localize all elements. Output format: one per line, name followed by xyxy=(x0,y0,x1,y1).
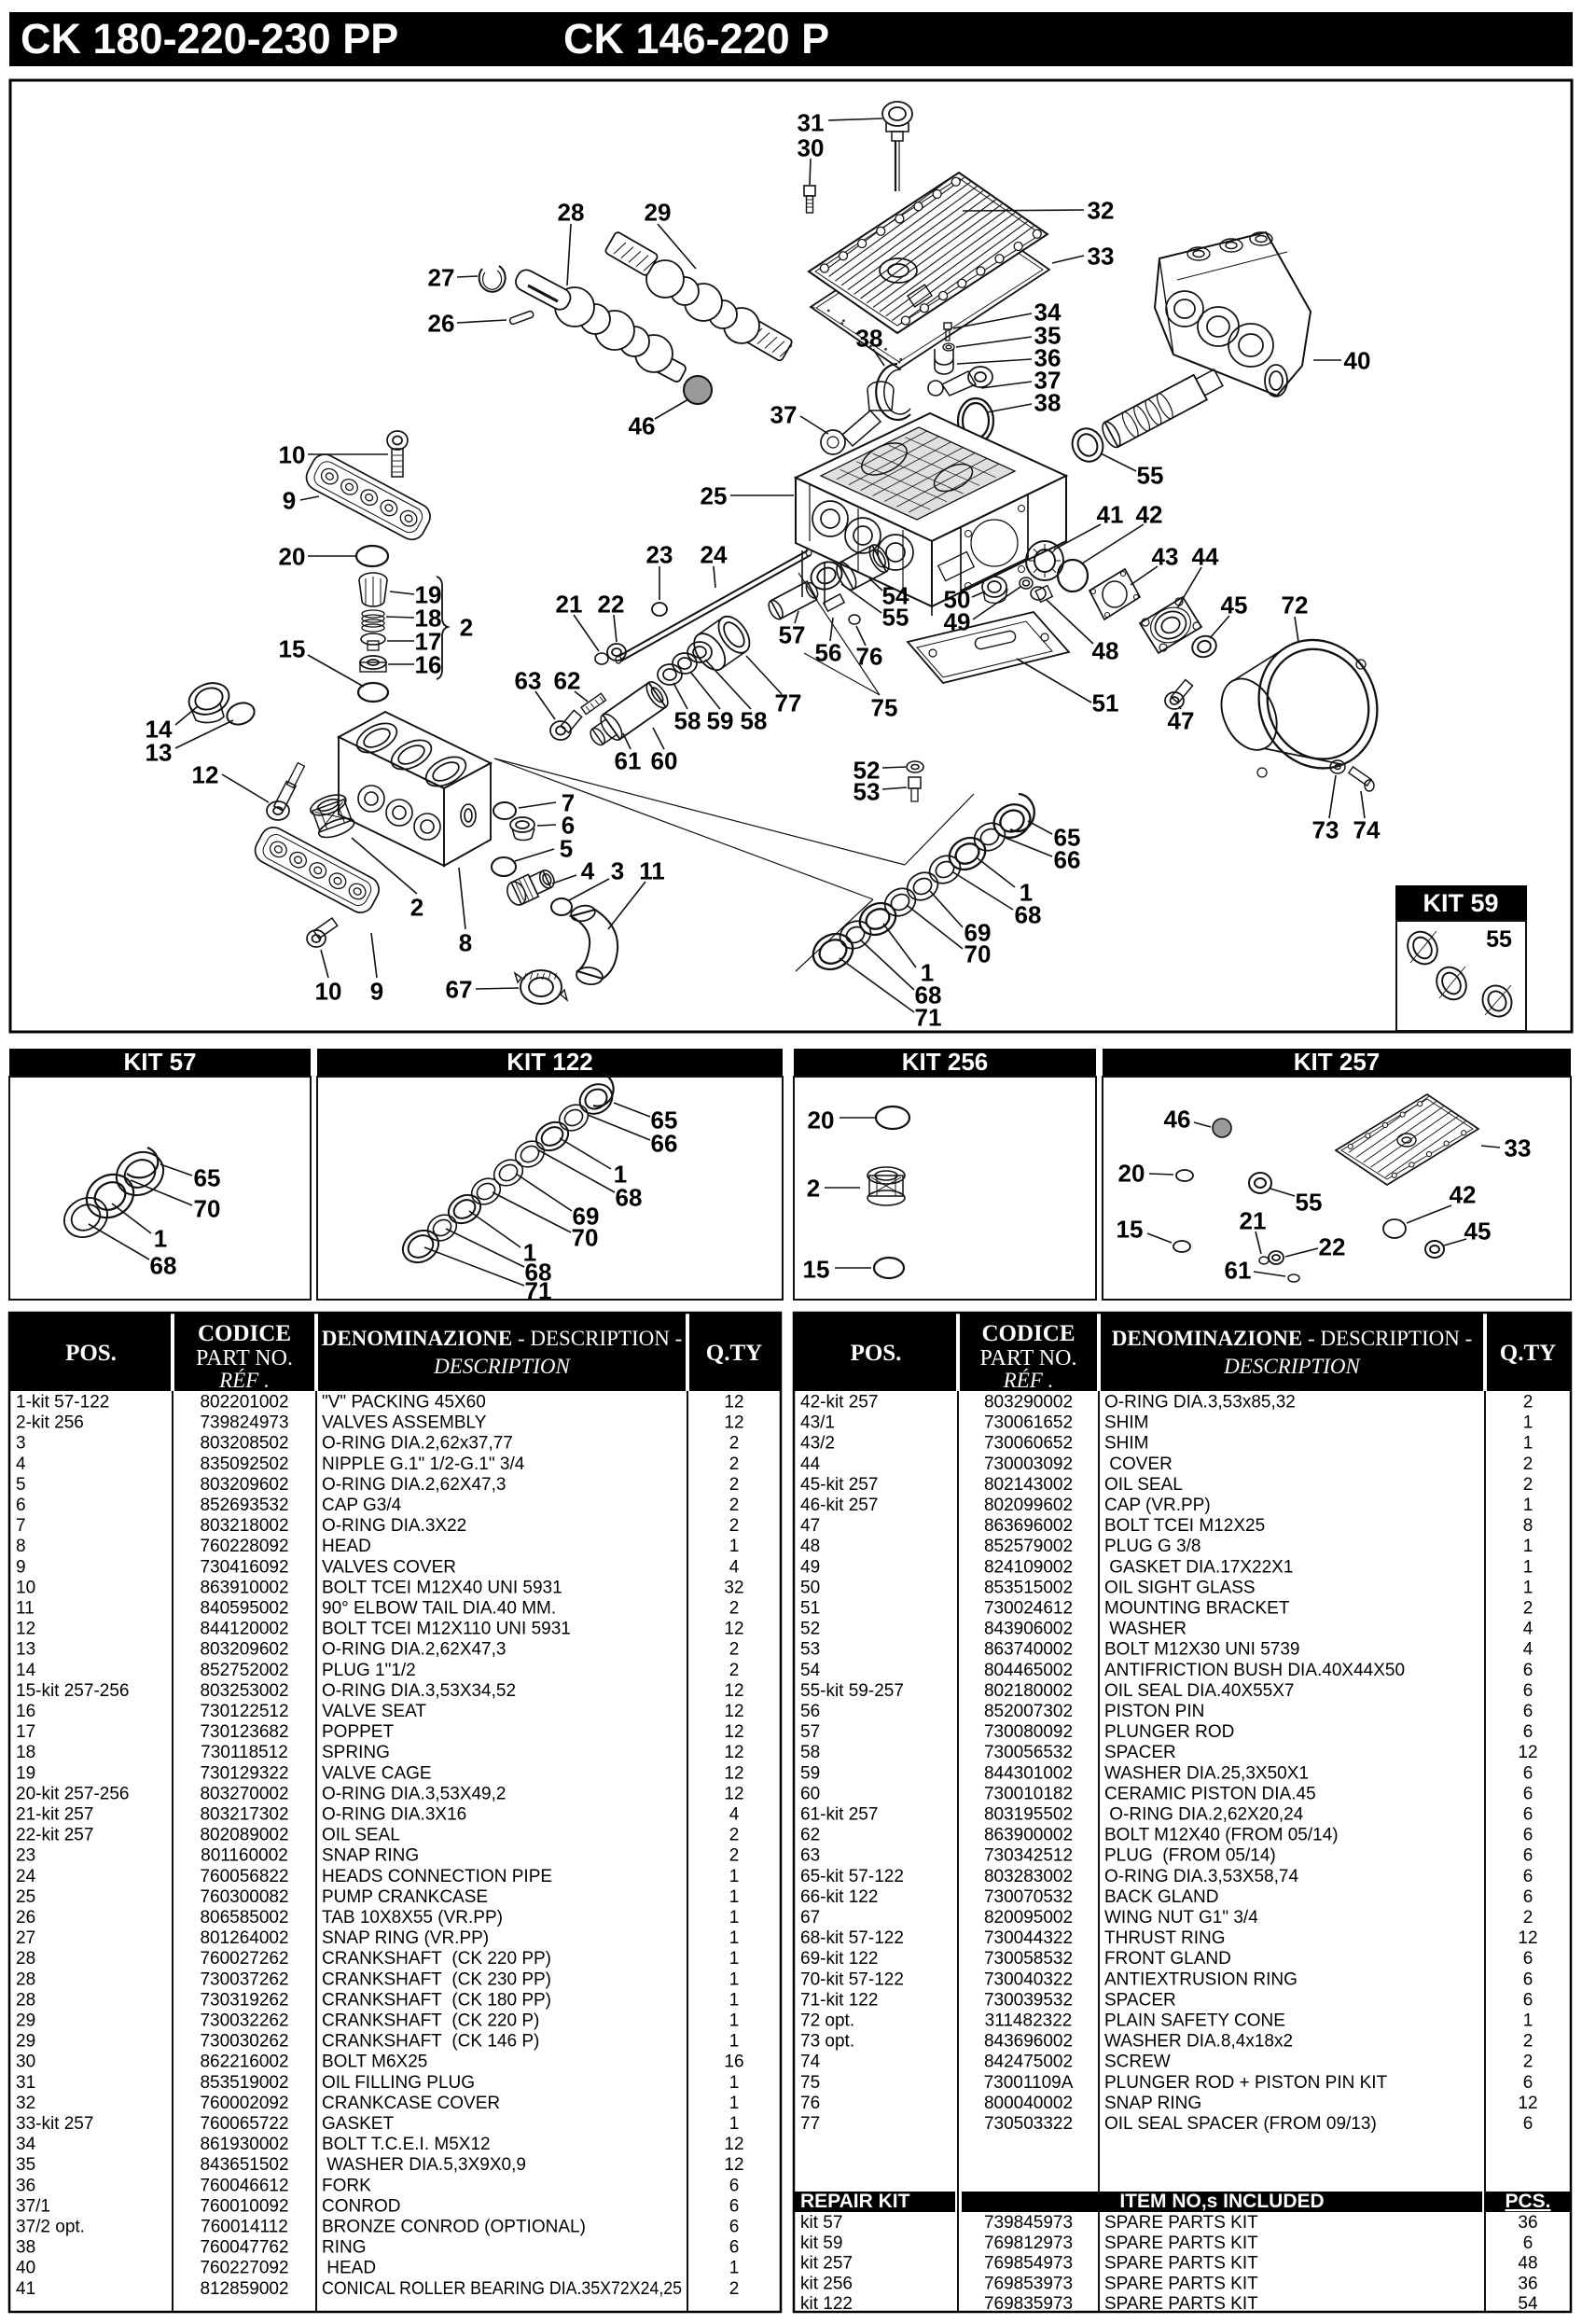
svg-text:801264002: 801264002 xyxy=(200,1928,288,1948)
svg-text:760027262: 760027262 xyxy=(200,1949,288,1969)
svg-text:730044322: 730044322 xyxy=(984,1928,1073,1948)
svg-text:TAB 10X8X55 (VR.PP): TAB 10X8X55 (VR.PP) xyxy=(322,1908,503,1927)
svg-text:23: 23 xyxy=(16,1846,35,1866)
svg-text:21: 21 xyxy=(1240,1206,1267,1234)
svg-text:38: 38 xyxy=(856,324,883,352)
svg-text:54: 54 xyxy=(800,1661,821,1680)
svg-text:6: 6 xyxy=(1523,1722,1533,1742)
svg-text:CRANKSHAFT (CK 220 P): CRANKSHAFT (CK 220 P) xyxy=(322,2011,539,2031)
svg-text:32: 32 xyxy=(724,1578,743,1597)
svg-text:43/2: 43/2 xyxy=(800,1434,835,1454)
svg-text:74: 74 xyxy=(800,2053,821,2072)
svg-text:CAP (VR.PP): CAP (VR.PP) xyxy=(1104,1496,1211,1515)
svg-text:WASHER: WASHER xyxy=(1104,1620,1186,1639)
svg-text:PLUNGER ROD + PISTON PIN KIT: PLUNGER ROD + PISTON PIN KIT xyxy=(1104,2073,1388,2093)
svg-text:2: 2 xyxy=(729,1661,740,1680)
svg-text:53: 53 xyxy=(800,1640,820,1660)
svg-text:12: 12 xyxy=(192,760,219,788)
svg-text:12: 12 xyxy=(724,1681,743,1701)
svg-text:RING: RING xyxy=(322,2238,367,2258)
svg-text:6: 6 xyxy=(1523,1805,1533,1825)
svg-text:20: 20 xyxy=(808,1106,835,1134)
svg-text:46: 46 xyxy=(629,411,656,439)
svg-text:12: 12 xyxy=(724,1413,743,1433)
svg-text:PISTON PIN: PISTON PIN xyxy=(1104,1702,1204,1721)
svg-text:843906002: 843906002 xyxy=(984,1620,1073,1639)
svg-text:6: 6 xyxy=(1523,1969,1533,1989)
svg-text:6: 6 xyxy=(1523,2114,1533,2134)
svg-text:70: 70 xyxy=(194,1194,221,1222)
svg-text:15: 15 xyxy=(803,1255,830,1283)
svg-text:36: 36 xyxy=(16,2176,35,2195)
svg-text:VALVE CAGE: VALVE CAGE xyxy=(322,1763,432,1783)
svg-text:6: 6 xyxy=(1523,1990,1533,2010)
svg-text:6: 6 xyxy=(1523,1763,1533,1783)
svg-text:2: 2 xyxy=(729,1434,740,1454)
svg-text:760227092: 760227092 xyxy=(200,2259,288,2278)
svg-text:75: 75 xyxy=(871,693,898,721)
svg-text:THRUST RING: THRUST RING xyxy=(1104,1928,1225,1948)
svg-text:6: 6 xyxy=(1523,1846,1533,1866)
svg-text:CRANKSHAFT (CK 220 PP): CRANKSHAFT (CK 220 PP) xyxy=(322,1949,551,1969)
svg-text:6: 6 xyxy=(1523,1867,1533,1886)
svg-text:GASKET DIA.17X22X1: GASKET DIA.17X22X1 xyxy=(1104,1557,1293,1577)
svg-text:69-kit 122: 69-kit 122 xyxy=(800,1949,878,1969)
svg-text:10: 10 xyxy=(16,1578,35,1597)
svg-text:760047762: 760047762 xyxy=(200,2238,288,2258)
svg-text:30: 30 xyxy=(798,133,825,161)
svg-text:1: 1 xyxy=(729,2073,740,2093)
svg-text:861930002: 861930002 xyxy=(200,2135,288,2154)
svg-text:BOLT M6X25: BOLT M6X25 xyxy=(322,2053,427,2072)
svg-text:SPRING: SPRING xyxy=(322,1743,390,1762)
svg-text:29: 29 xyxy=(16,2011,35,2031)
svg-text:844120002: 844120002 xyxy=(200,1620,288,1639)
svg-text:1: 1 xyxy=(729,1908,740,1927)
svg-text:OIL SEAL: OIL SEAL xyxy=(1104,1475,1183,1495)
svg-text:2: 2 xyxy=(729,1640,740,1660)
svg-text:844301002: 844301002 xyxy=(984,1763,1073,1783)
svg-text:61: 61 xyxy=(1225,1256,1252,1284)
svg-text:65: 65 xyxy=(194,1163,221,1191)
svg-text:BRONZE CONROD (OPTIONAL): BRONZE CONROD (OPTIONAL) xyxy=(322,2218,586,2237)
svg-text:806585002: 806585002 xyxy=(200,1908,288,1927)
svg-text:55: 55 xyxy=(1296,1188,1323,1216)
svg-text:52: 52 xyxy=(800,1620,820,1639)
svg-text:6: 6 xyxy=(1523,1661,1533,1680)
svg-text:44: 44 xyxy=(800,1454,821,1474)
svg-text:840595002: 840595002 xyxy=(200,1599,288,1619)
svg-text:77: 77 xyxy=(775,689,802,717)
svg-text:6: 6 xyxy=(1523,1681,1533,1701)
svg-text:22: 22 xyxy=(598,590,625,618)
svg-text:730003092: 730003092 xyxy=(984,1454,1073,1474)
svg-text:802099602: 802099602 xyxy=(984,1496,1073,1515)
svg-text:2: 2 xyxy=(729,1826,740,1845)
svg-text:58: 58 xyxy=(800,1743,820,1762)
svg-text:11: 11 xyxy=(16,1599,35,1619)
svg-text:70-kit 57-122: 70-kit 57-122 xyxy=(800,1969,904,1989)
svg-text:53: 53 xyxy=(853,777,881,805)
svg-text:45: 45 xyxy=(1221,591,1248,619)
svg-text:5: 5 xyxy=(560,834,573,862)
svg-text:71: 71 xyxy=(525,1276,552,1304)
svg-text:6: 6 xyxy=(729,2176,740,2195)
svg-text:O-RING DIA.3,53X58,74: O-RING DIA.3,53X58,74 xyxy=(1104,1867,1298,1886)
svg-text:68: 68 xyxy=(616,1183,643,1211)
svg-text:730060652: 730060652 xyxy=(984,1434,1073,1454)
svg-text:CRANKCASE COVER: CRANKCASE COVER xyxy=(322,2094,500,2113)
svg-text:812859002: 812859002 xyxy=(200,2279,288,2299)
svg-text:1: 1 xyxy=(1523,1413,1533,1433)
svg-text:1: 1 xyxy=(729,1887,740,1907)
svg-text:71: 71 xyxy=(915,1003,942,1031)
svg-text:21: 21 xyxy=(556,590,583,618)
svg-text:26: 26 xyxy=(16,1908,35,1927)
svg-text:820095002: 820095002 xyxy=(984,1908,1073,1927)
svg-text:44: 44 xyxy=(1192,542,1219,570)
svg-text:802201002: 802201002 xyxy=(200,1393,288,1412)
svg-text:730118512: 730118512 xyxy=(201,1743,288,1762)
svg-text:12: 12 xyxy=(724,1784,743,1803)
svg-text:49: 49 xyxy=(800,1557,820,1577)
svg-text:75: 75 xyxy=(800,2073,820,2093)
svg-text:HEAD: HEAD xyxy=(322,2259,376,2278)
svg-text:kit 59: kit 59 xyxy=(800,2234,842,2253)
svg-text:46: 46 xyxy=(1164,1105,1191,1133)
svg-text:73 opt.: 73 opt. xyxy=(800,2032,854,2052)
svg-text:730122512: 730122512 xyxy=(200,1702,288,1721)
svg-text:O-RING DIA.2,62X20,24: O-RING DIA.2,62X20,24 xyxy=(1104,1805,1304,1825)
svg-text:HEAD: HEAD xyxy=(322,1537,371,1556)
svg-text:O-RING DIA.3X16: O-RING DIA.3X16 xyxy=(322,1805,466,1825)
svg-text:32: 32 xyxy=(1088,196,1115,224)
svg-text:BOLT TCEI M12X40 UNI 5931: BOLT TCEI M12X40 UNI 5931 xyxy=(322,1578,562,1597)
svg-text:2: 2 xyxy=(729,1846,740,1866)
svg-text:CERAMIC PISTON DIA.45: CERAMIC PISTON DIA.45 xyxy=(1104,1784,1316,1803)
svg-text:863900002: 863900002 xyxy=(984,1826,1073,1845)
svg-text:VALVE SEAT: VALVE SEAT xyxy=(322,1702,426,1721)
svg-text:SPACER: SPACER xyxy=(1104,1990,1176,2010)
svg-text:PLUG G 3/8: PLUG G 3/8 xyxy=(1104,1537,1201,1556)
svg-text:54: 54 xyxy=(1518,2294,1538,2314)
svg-text:70: 70 xyxy=(964,939,992,967)
svg-text:802089002: 802089002 xyxy=(200,1826,288,1845)
svg-text:1: 1 xyxy=(729,1949,740,1969)
svg-text:SNAP RING (VR.PP): SNAP RING (VR.PP) xyxy=(322,1928,489,1948)
svg-text:66-kit 122: 66-kit 122 xyxy=(800,1887,878,1907)
svg-text:48: 48 xyxy=(1092,636,1119,664)
svg-text:730342512: 730342512 xyxy=(984,1846,1073,1866)
svg-text:14: 14 xyxy=(16,1661,36,1680)
svg-text:45: 45 xyxy=(1464,1217,1492,1245)
svg-text:43/1: 43/1 xyxy=(800,1413,835,1433)
svg-text:730010182: 730010182 xyxy=(984,1784,1073,1803)
svg-text:OIL SEAL DIA.40X55X7: OIL SEAL DIA.40X55X7 xyxy=(1104,1681,1295,1701)
svg-text:O-RING DIA.2,62X47,3: O-RING DIA.2,62X47,3 xyxy=(322,1640,506,1660)
svg-text:739824973: 739824973 xyxy=(200,1413,288,1433)
svg-text:O-RING DIA.2,62x37,77: O-RING DIA.2,62x37,77 xyxy=(322,1434,513,1454)
svg-text:60: 60 xyxy=(651,746,678,774)
svg-text:803209602: 803209602 xyxy=(200,1640,288,1660)
svg-text:23: 23 xyxy=(646,540,673,568)
svg-text:15-kit 257-256: 15-kit 257-256 xyxy=(16,1681,129,1701)
svg-text:BOLT TCEI M12X25: BOLT TCEI M12X25 xyxy=(1104,1516,1265,1536)
svg-text:O-RING DIA.3X22: O-RING DIA.3X22 xyxy=(322,1516,466,1536)
svg-text:OIL SEAL: OIL SEAL xyxy=(322,1826,400,1845)
svg-text:BOLT TCEI M12X110 UNI 5931: BOLT TCEI M12X110 UNI 5931 xyxy=(322,1620,571,1639)
svg-text:PLUNGER ROD: PLUNGER ROD xyxy=(1104,1722,1234,1742)
svg-text:730416092: 730416092 xyxy=(200,1557,288,1577)
svg-text:55: 55 xyxy=(1486,926,1512,953)
svg-text:PLAIN SAFETY CONE: PLAIN SAFETY CONE xyxy=(1104,2011,1285,2031)
svg-text:59: 59 xyxy=(707,706,734,734)
svg-text:SHIM: SHIM xyxy=(1104,1413,1149,1433)
svg-text:20: 20 xyxy=(1118,1159,1145,1187)
svg-text:O-RING DIA.3,53X34,52: O-RING DIA.3,53X34,52 xyxy=(322,1681,516,1701)
svg-text:30: 30 xyxy=(16,2053,35,2072)
svg-text:72 opt.: 72 opt. xyxy=(800,2011,854,2031)
svg-text:60: 60 xyxy=(800,1784,820,1803)
svg-text:16: 16 xyxy=(415,650,442,678)
svg-text:61-kit 257: 61-kit 257 xyxy=(800,1805,878,1825)
svg-text:28: 28 xyxy=(16,1969,35,1989)
svg-text:4: 4 xyxy=(729,1805,740,1825)
svg-text:62: 62 xyxy=(554,666,581,694)
svg-text:835092502: 835092502 xyxy=(200,1454,288,1474)
svg-text:63: 63 xyxy=(515,666,542,694)
svg-text:12: 12 xyxy=(724,1763,743,1783)
svg-text:730061652: 730061652 xyxy=(984,1413,1073,1433)
svg-text:20: 20 xyxy=(279,542,306,570)
svg-text:POS.: POS. xyxy=(65,1341,117,1366)
svg-text:41: 41 xyxy=(16,2279,35,2299)
svg-text:31: 31 xyxy=(16,2073,35,2093)
svg-text:9: 9 xyxy=(16,1557,26,1577)
svg-text:1: 1 xyxy=(1523,1578,1533,1597)
svg-text:760010092: 760010092 xyxy=(200,2196,288,2216)
svg-text:42: 42 xyxy=(1450,1180,1477,1208)
svg-text:12: 12 xyxy=(1518,2094,1537,2113)
svg-text:58: 58 xyxy=(674,706,701,734)
svg-text:862216002: 862216002 xyxy=(200,2053,288,2072)
svg-text:19: 19 xyxy=(16,1763,35,1783)
svg-text:KIT 257: KIT 257 xyxy=(1294,1048,1381,1076)
svg-text:12: 12 xyxy=(1518,1928,1537,1948)
svg-text:BOLT T.C.E.I. M5X12: BOLT T.C.E.I. M5X12 xyxy=(322,2135,491,2154)
svg-text:24: 24 xyxy=(16,1867,36,1886)
svg-text:760300082: 760300082 xyxy=(200,1887,288,1907)
svg-text:FRONT GLAND: FRONT GLAND xyxy=(1104,1949,1231,1969)
svg-text:kit 257: kit 257 xyxy=(800,2254,853,2274)
svg-text:2-kit 256: 2-kit 256 xyxy=(16,1413,84,1433)
svg-text:760046612: 760046612 xyxy=(200,2176,288,2195)
svg-text:68-kit 57-122: 68-kit 57-122 xyxy=(800,1928,904,1948)
svg-text:KIT 59: KIT 59 xyxy=(1422,889,1498,917)
svg-text:25: 25 xyxy=(16,1887,35,1907)
svg-text:OIL SEAL SPACER (FROM 09/13): OIL SEAL SPACER (FROM 09/13) xyxy=(1104,2114,1377,2134)
svg-text:6: 6 xyxy=(1523,1826,1533,1845)
svg-text:12: 12 xyxy=(724,1702,743,1721)
svg-text:46-kit 257: 46-kit 257 xyxy=(800,1496,878,1515)
svg-text:852007302: 852007302 xyxy=(984,1702,1073,1721)
svg-text:SPARE PARTS KIT: SPARE PARTS KIT xyxy=(1104,2213,1258,2233)
svg-text:802180002: 802180002 xyxy=(984,1681,1073,1701)
svg-text:730123682: 730123682 xyxy=(200,1722,288,1742)
svg-text:OIL FILLING PLUG: OIL FILLING PLUG xyxy=(322,2073,475,2093)
svg-text:CAP G3/4: CAP G3/4 xyxy=(322,1496,402,1515)
svg-text:24: 24 xyxy=(701,540,728,568)
svg-text:853519002: 853519002 xyxy=(200,2073,288,2093)
svg-text:6: 6 xyxy=(1523,2234,1533,2253)
svg-text:863696002: 863696002 xyxy=(984,1516,1073,1536)
svg-text:56: 56 xyxy=(815,638,842,666)
svg-text:HEADS CONNECTION PIPE: HEADS CONNECTION PIPE xyxy=(322,1867,552,1886)
svg-text:37: 37 xyxy=(770,400,798,428)
svg-text:33-kit 257: 33-kit 257 xyxy=(16,2114,93,2134)
svg-text:SCREW: SCREW xyxy=(1104,2053,1171,2072)
svg-text:1-kit 57-122: 1-kit 57-122 xyxy=(16,1393,109,1412)
svg-text:FORK: FORK xyxy=(322,2176,371,2195)
svg-text:SNAP RING: SNAP RING xyxy=(1104,2094,1201,2113)
svg-text:COVER: COVER xyxy=(1104,1454,1173,1474)
svg-text:55-kit 59-257: 55-kit 59-257 xyxy=(800,1681,904,1701)
svg-text:42-kit 257: 42-kit 257 xyxy=(800,1393,878,1412)
svg-text:760228092: 760228092 xyxy=(200,1537,288,1556)
svg-text:842475002: 842475002 xyxy=(984,2053,1073,2072)
svg-text:4: 4 xyxy=(581,856,595,884)
svg-text:2: 2 xyxy=(410,893,423,921)
svg-text:3: 3 xyxy=(16,1434,26,1454)
svg-text:PART NO.: PART NO. xyxy=(196,1346,293,1371)
svg-text:4: 4 xyxy=(1523,1640,1533,1660)
svg-text:803253002: 803253002 xyxy=(200,1681,288,1701)
svg-text:803218002: 803218002 xyxy=(200,1516,288,1536)
svg-text:40: 40 xyxy=(16,2259,35,2278)
svg-text:12: 12 xyxy=(724,1393,743,1412)
svg-text:8: 8 xyxy=(1523,1516,1533,1536)
svg-text:38: 38 xyxy=(16,2238,35,2258)
svg-text:2: 2 xyxy=(729,1454,740,1474)
svg-text:1: 1 xyxy=(1523,1496,1533,1515)
svg-text:852752002: 852752002 xyxy=(200,1661,288,1680)
svg-text:6: 6 xyxy=(1523,1784,1533,1803)
svg-text:55: 55 xyxy=(1137,461,1164,489)
svg-text:1: 1 xyxy=(729,1928,740,1948)
svg-text:311482322: 311482322 xyxy=(985,2011,1073,2031)
svg-text:11: 11 xyxy=(639,856,665,884)
svg-text:10: 10 xyxy=(279,440,306,468)
svg-text:CONROD: CONROD xyxy=(322,2196,400,2216)
svg-text:70: 70 xyxy=(572,1223,599,1251)
svg-text:803208502: 803208502 xyxy=(200,1434,288,1454)
svg-text:1: 1 xyxy=(729,1990,740,2010)
svg-text:63: 63 xyxy=(800,1846,820,1866)
svg-text:12: 12 xyxy=(724,2155,743,2175)
svg-text:90° ELBOW TAIL DIA.40 MM.: 90° ELBOW TAIL DIA.40 MM. xyxy=(322,1599,556,1619)
svg-text:57: 57 xyxy=(779,620,806,648)
svg-text:SPARE PARTS KIT: SPARE PARTS KIT xyxy=(1104,2254,1258,2274)
svg-text:ANTIFRICTION BUSH DIA.40X44X50: ANTIFRICTION BUSH DIA.40X44X50 xyxy=(1104,1661,1405,1680)
svg-text:CRANKSHAFT (CK 230 PP): CRANKSHAFT (CK 230 PP) xyxy=(322,1969,551,1989)
svg-text:730039532: 730039532 xyxy=(984,1990,1073,2010)
svg-text:37/2 opt.: 37/2 opt. xyxy=(16,2218,85,2237)
svg-text:SPACER: SPACER xyxy=(1104,1743,1176,1762)
svg-text:730037262: 730037262 xyxy=(200,1969,288,1989)
svg-text:13: 13 xyxy=(16,1640,35,1660)
svg-text:58: 58 xyxy=(741,706,768,734)
svg-text:6: 6 xyxy=(1523,1887,1533,1907)
svg-text:21-kit 257: 21-kit 257 xyxy=(16,1805,93,1825)
svg-text:26: 26 xyxy=(428,309,455,337)
svg-text:739845973: 739845973 xyxy=(984,2213,1073,2233)
svg-text:852693532: 852693532 xyxy=(200,1496,288,1515)
svg-text:730080092: 730080092 xyxy=(984,1722,1073,1742)
svg-text:17: 17 xyxy=(16,1722,35,1742)
svg-text:2: 2 xyxy=(1523,2032,1533,2052)
svg-text:37/1: 37/1 xyxy=(16,2196,50,2216)
svg-text:ITEM NO,s INCLUDED: ITEM NO,s INCLUDED xyxy=(1119,2191,1324,2212)
svg-text:769853973: 769853973 xyxy=(984,2274,1073,2293)
svg-text:72: 72 xyxy=(1282,591,1309,619)
svg-text:VALVES ASSEMBLY: VALVES ASSEMBLY xyxy=(322,1413,487,1433)
svg-text:SPARE PARTS KIT: SPARE PARTS KIT xyxy=(1104,2294,1258,2314)
svg-text:12: 12 xyxy=(724,1722,743,1742)
svg-text:769812973: 769812973 xyxy=(984,2234,1073,2253)
svg-text:POS.: POS. xyxy=(851,1341,902,1366)
svg-text:800040002: 800040002 xyxy=(984,2094,1073,2113)
svg-text:CRANKSHAFT (CK 146 P): CRANKSHAFT (CK 146 P) xyxy=(322,2032,539,2052)
svg-text:WING NUT G1" 3/4: WING NUT G1" 3/4 xyxy=(1104,1908,1258,1927)
svg-text:4: 4 xyxy=(1523,1620,1533,1639)
svg-text:28: 28 xyxy=(16,1949,35,1969)
svg-text:1: 1 xyxy=(729,1537,740,1556)
svg-text:50: 50 xyxy=(800,1578,820,1597)
svg-text:8: 8 xyxy=(459,928,472,956)
svg-text:1: 1 xyxy=(729,2032,740,2052)
svg-text:852579002: 852579002 xyxy=(984,1537,1073,1556)
svg-text:1: 1 xyxy=(729,2011,740,2031)
svg-text:57: 57 xyxy=(800,1722,820,1742)
svg-text:NIPPLE G.1" 1/2-G.1" 3/4: NIPPLE G.1" 1/2-G.1" 3/4 xyxy=(322,1454,525,1474)
svg-text:2: 2 xyxy=(1523,1908,1533,1927)
svg-text:WASHER DIA.5,3X9X0,9: WASHER DIA.5,3X9X0,9 xyxy=(322,2155,526,2175)
svg-text:804465002: 804465002 xyxy=(984,1661,1073,1680)
svg-text:PLUG 1"1/2: PLUG 1"1/2 xyxy=(322,1661,416,1680)
svg-text:54: 54 xyxy=(882,581,909,609)
svg-text:7: 7 xyxy=(16,1516,26,1536)
svg-text:CK 146-220 P: CK 146-220 P xyxy=(563,15,829,63)
svg-text:1: 1 xyxy=(729,1969,740,1989)
svg-text:6: 6 xyxy=(1523,2073,1533,2093)
svg-text:730058532: 730058532 xyxy=(984,1949,1073,1969)
svg-text:6: 6 xyxy=(1523,1702,1533,1721)
svg-text:PUMP CRANKCASE: PUMP CRANKCASE xyxy=(322,1887,488,1907)
svg-text:2: 2 xyxy=(1523,1454,1533,1474)
svg-text:SNAP RING: SNAP RING xyxy=(322,1846,419,1866)
svg-text:KIT 256: KIT 256 xyxy=(902,1048,989,1076)
svg-text:36: 36 xyxy=(1518,2213,1537,2233)
svg-text:8: 8 xyxy=(16,1537,26,1556)
svg-text:2: 2 xyxy=(729,1516,740,1536)
svg-text:BOLT M12X40 (FROM 05/14): BOLT M12X40 (FROM 05/14) xyxy=(1104,1826,1339,1845)
svg-text:O-RING DIA.3,53X49,2: O-RING DIA.3,53X49,2 xyxy=(322,1784,506,1803)
svg-text:67: 67 xyxy=(446,975,473,1003)
svg-text:12: 12 xyxy=(724,2135,743,2154)
svg-text:730040322: 730040322 xyxy=(984,1969,1073,1989)
svg-text:66: 66 xyxy=(1054,845,1081,873)
svg-text:36: 36 xyxy=(1518,2274,1537,2293)
